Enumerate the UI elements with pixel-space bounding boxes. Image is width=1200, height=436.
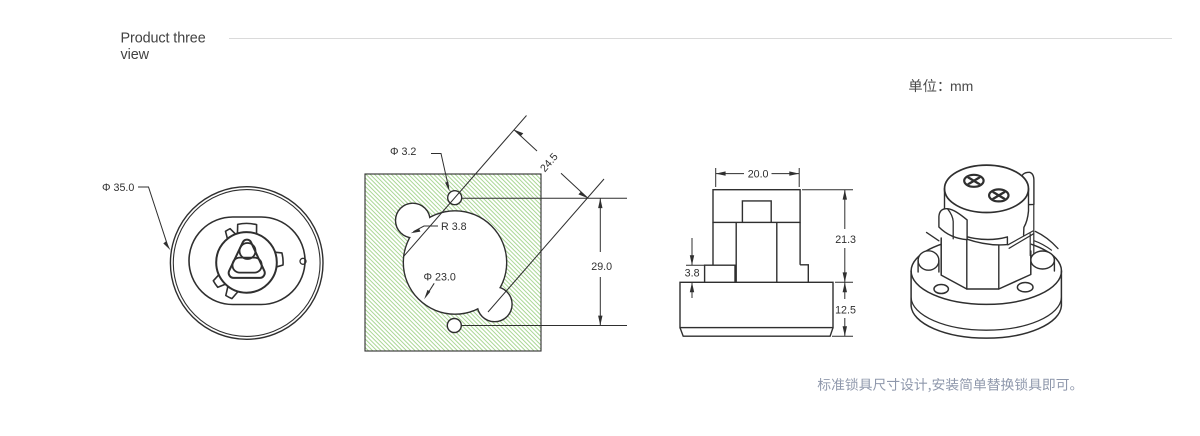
svg-text:Φ 23.0: Φ 23.0 bbox=[424, 271, 456, 283]
svg-text:view: view bbox=[121, 47, 150, 63]
svg-text:mm: mm bbox=[950, 78, 973, 94]
svg-text:Product three: Product three bbox=[121, 31, 206, 47]
svg-text:21.3: 21.3 bbox=[835, 234, 856, 246]
svg-text:12.5: 12.5 bbox=[835, 304, 856, 316]
svg-text:20.0: 20.0 bbox=[748, 169, 769, 181]
svg-text:Φ 35.0: Φ 35.0 bbox=[102, 182, 134, 194]
svg-text:R 3.8: R 3.8 bbox=[441, 221, 467, 233]
svg-text:Φ 3.2: Φ 3.2 bbox=[390, 146, 416, 158]
svg-text:3.8: 3.8 bbox=[685, 268, 700, 280]
svg-text:29.0: 29.0 bbox=[591, 261, 612, 273]
